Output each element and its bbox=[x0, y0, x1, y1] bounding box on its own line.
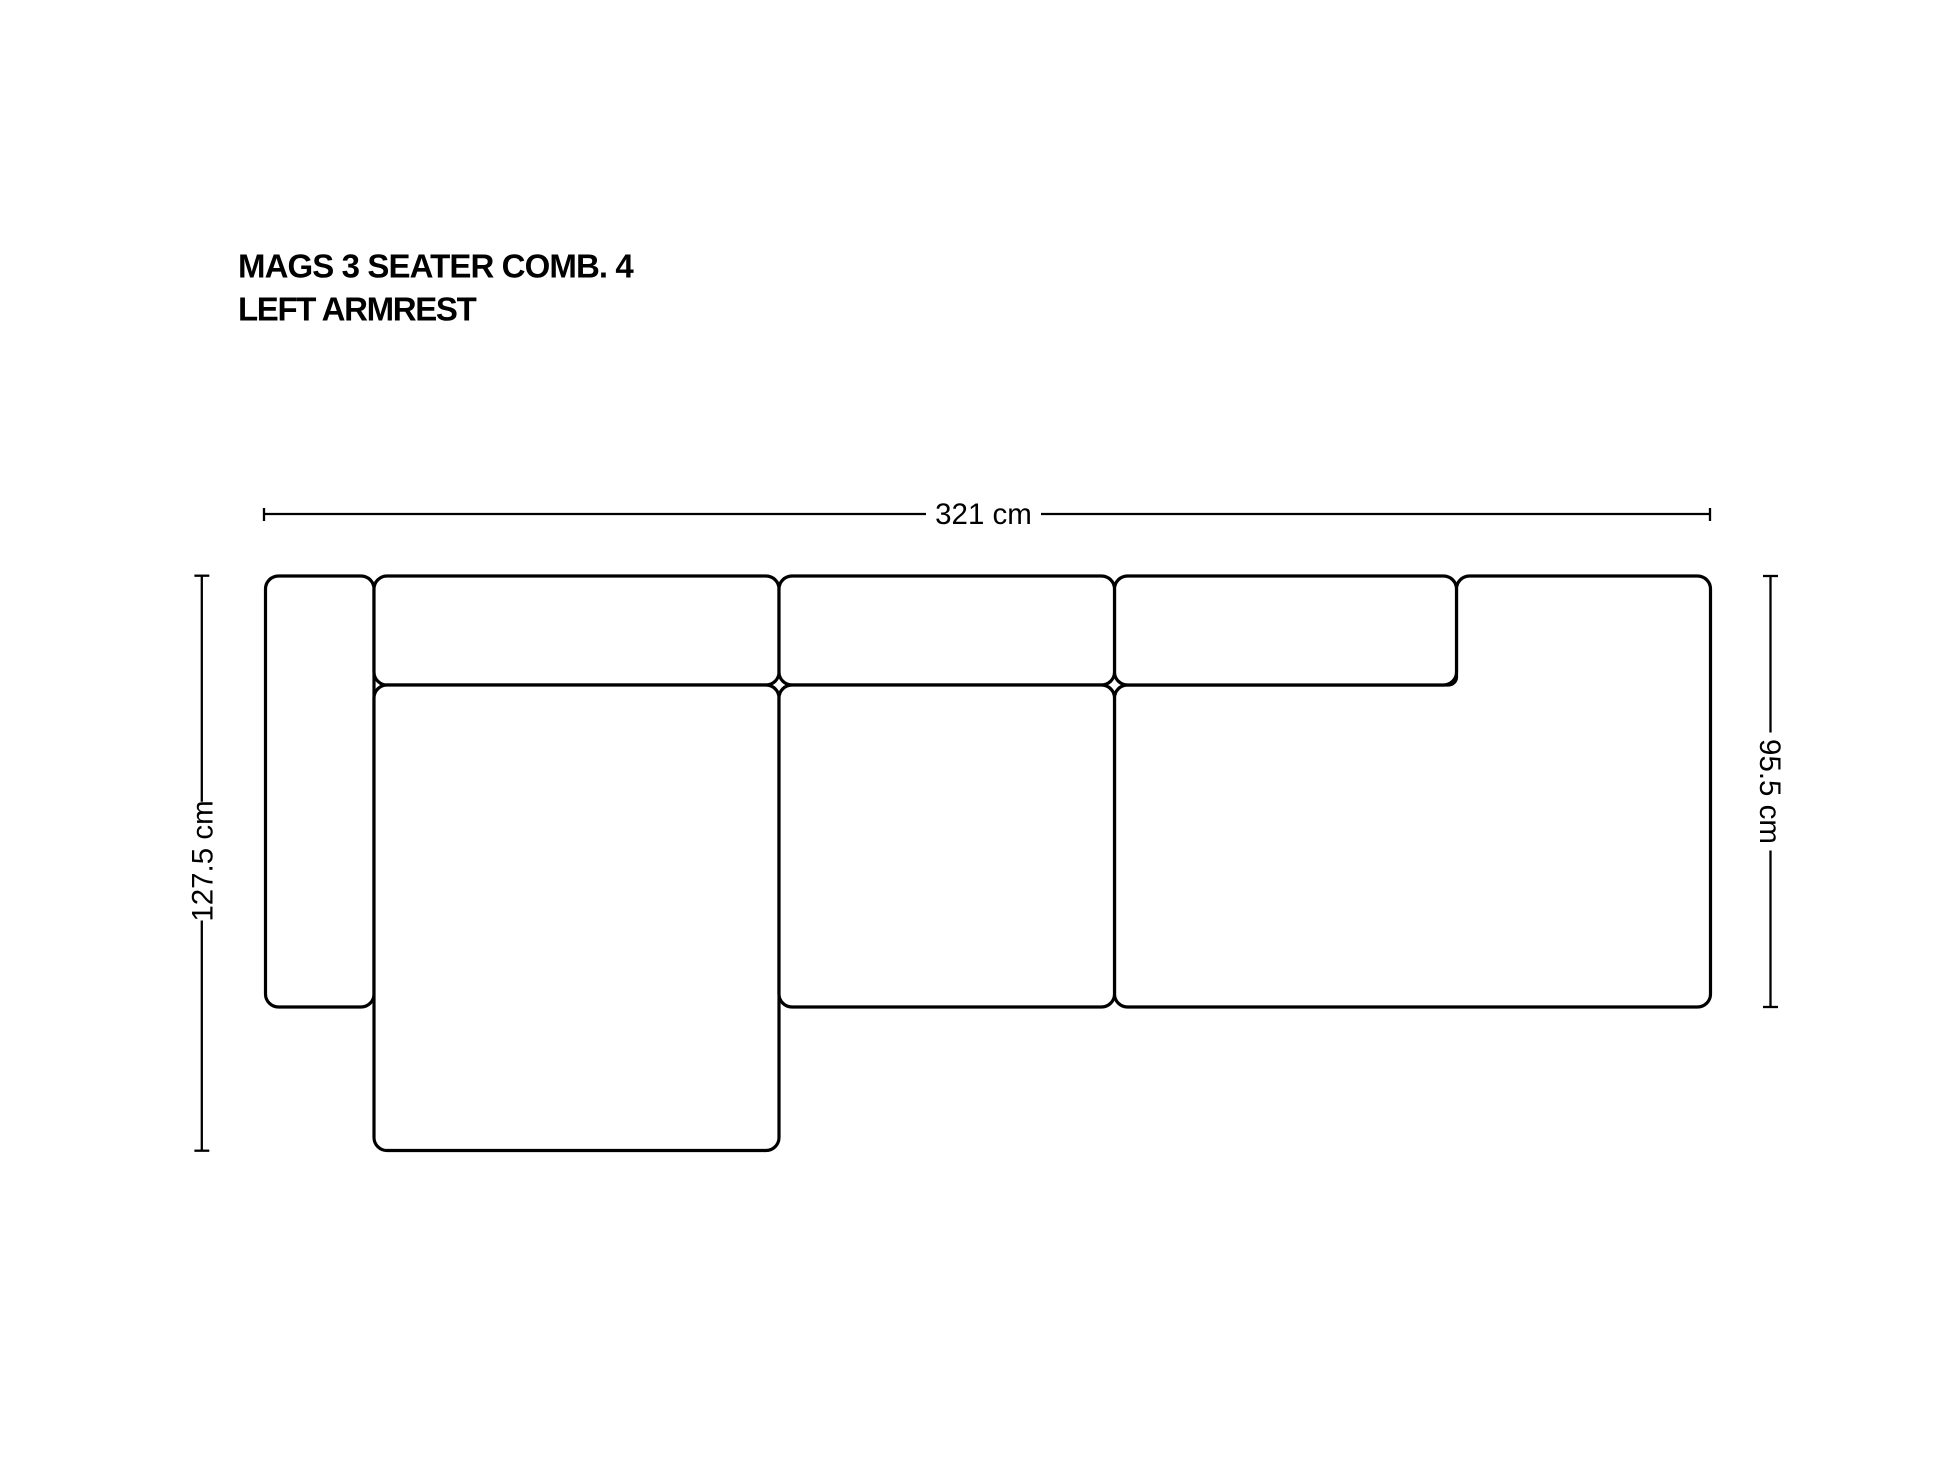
svg-text:321 cm: 321 cm bbox=[935, 498, 1032, 531]
svg-text:MAGS 3 SEATER COMB. 4: MAGS 3 SEATER COMB. 4 bbox=[238, 248, 634, 285]
svg-text:127.5 cm: 127.5 cm bbox=[186, 800, 219, 921]
svg-text:LEFT ARMREST: LEFT ARMREST bbox=[238, 291, 477, 328]
svg-text:95.5 cm: 95.5 cm bbox=[1753, 739, 1786, 844]
